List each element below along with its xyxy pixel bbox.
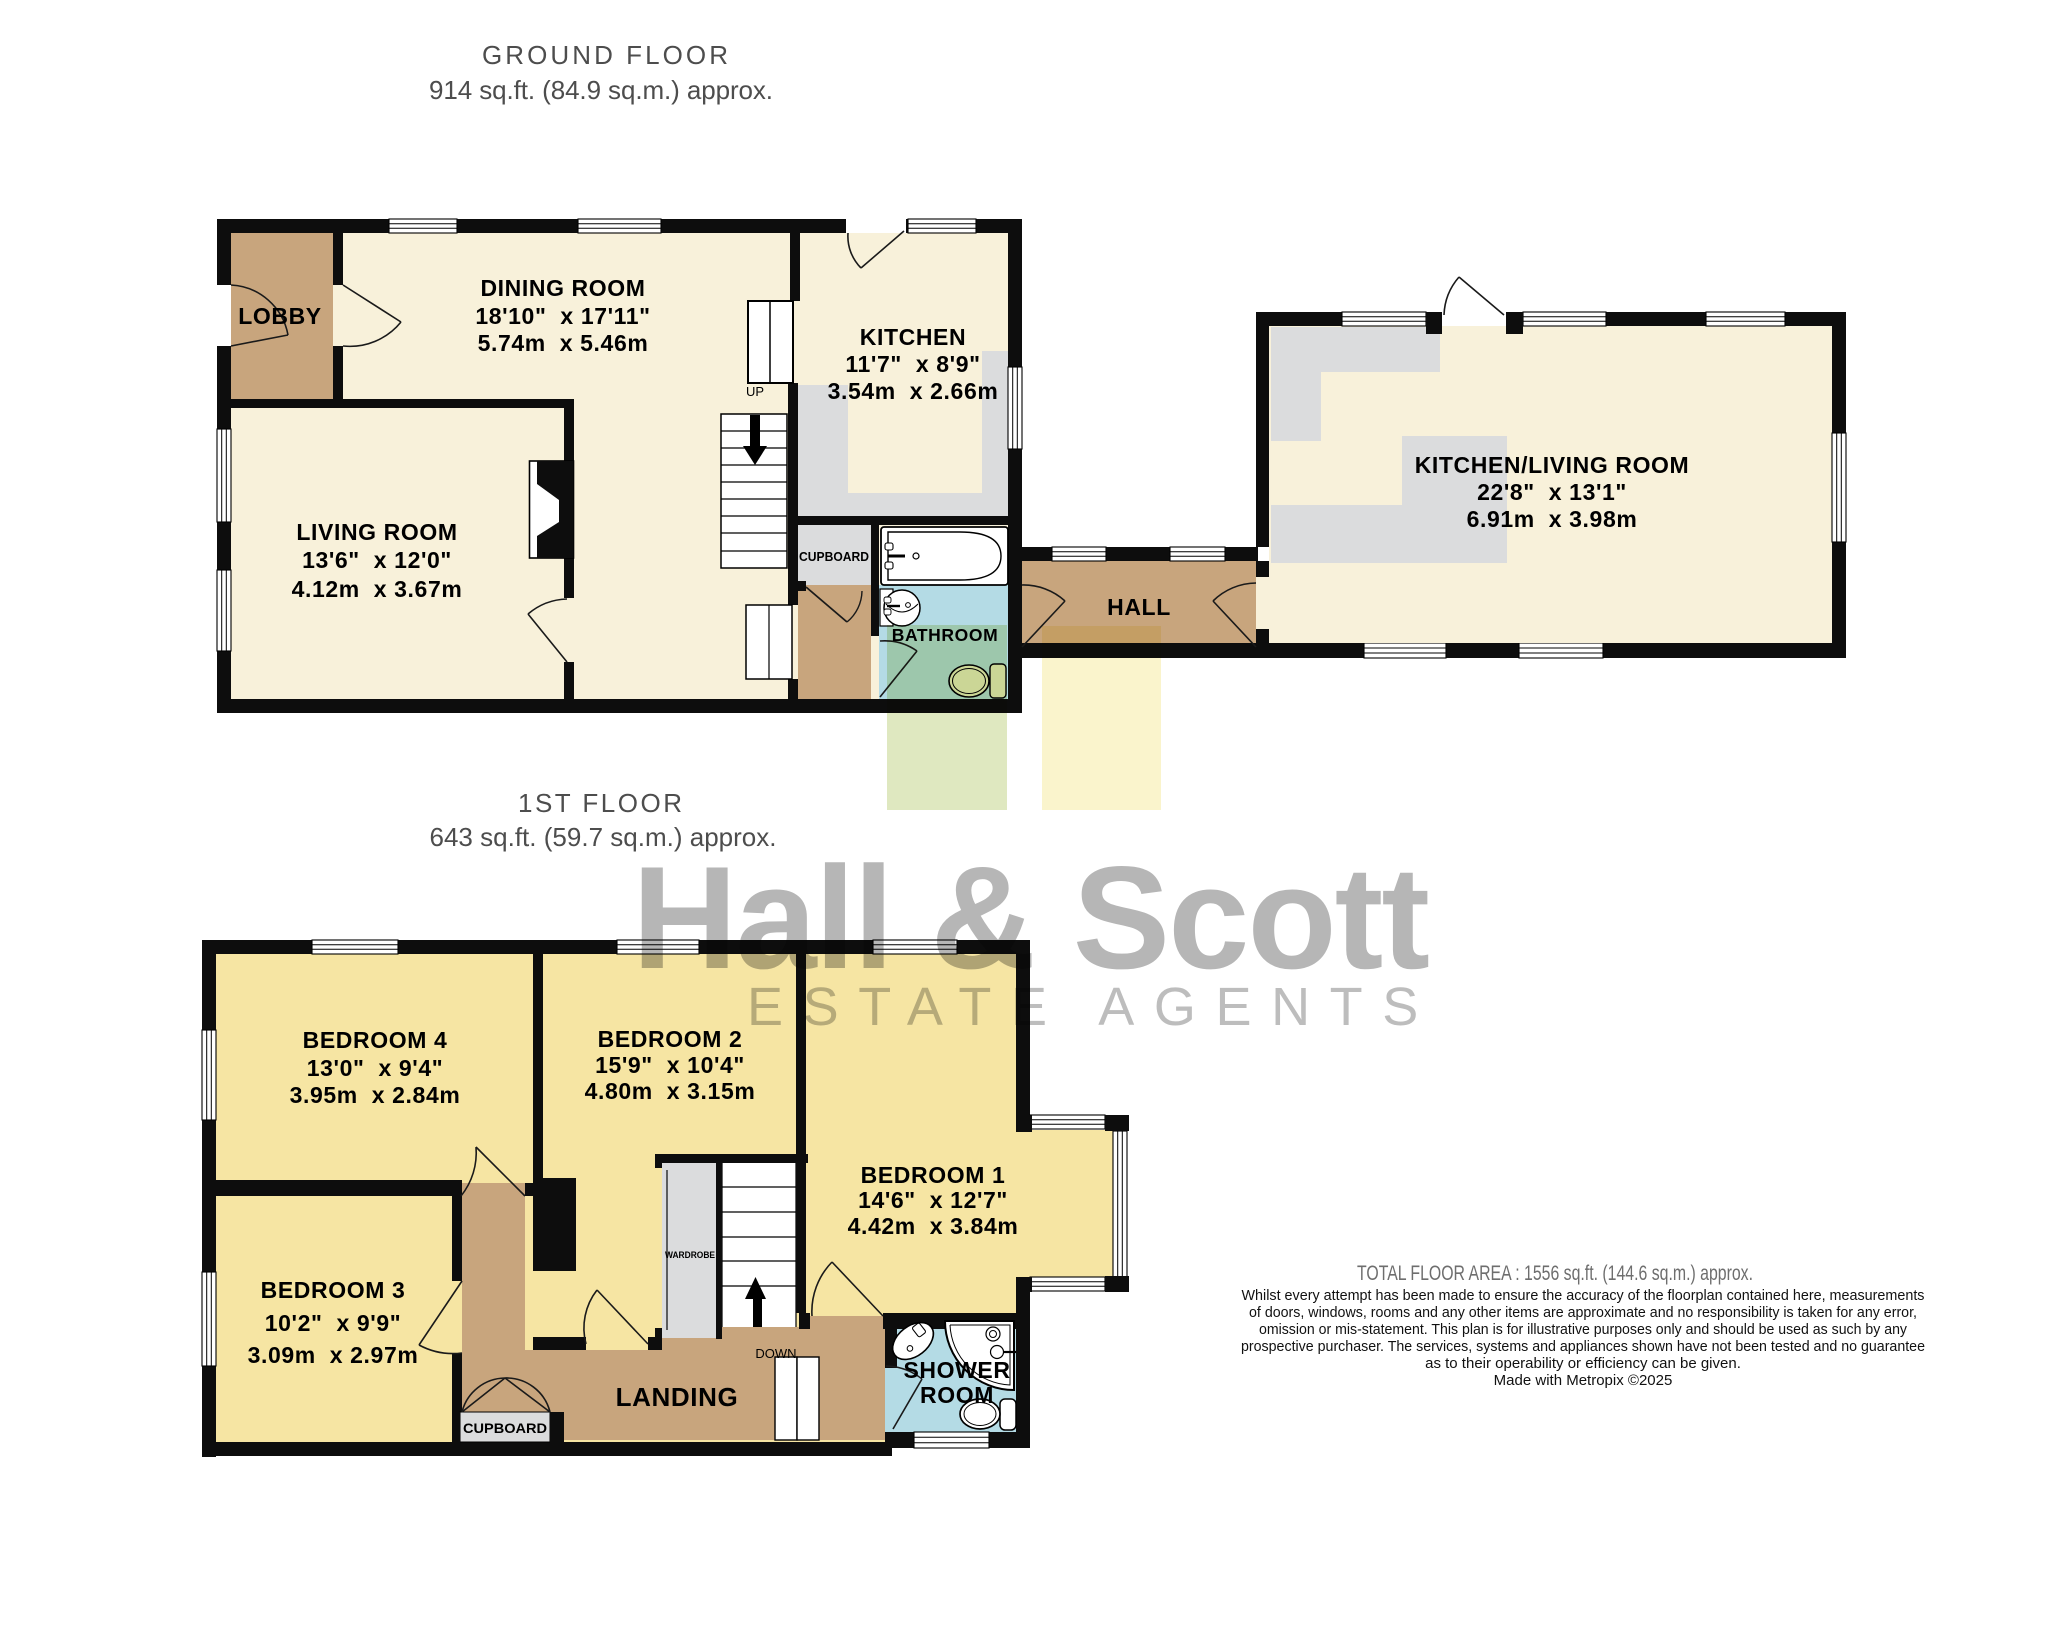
svg-text:BEDROOM 4: BEDROOM 4 bbox=[303, 1027, 448, 1053]
svg-text:of doors, windows, rooms and a: of doors, windows, rooms and any other i… bbox=[1249, 1304, 1917, 1321]
svg-text:Made with Metropix ©2025: Made with Metropix ©2025 bbox=[1494, 1372, 1673, 1389]
svg-text:15'9" x 10'4": 15'9" x 10'4" bbox=[595, 1052, 745, 1078]
svg-text:CUPBOARD: CUPBOARD bbox=[799, 549, 869, 564]
svg-text:Hall & Scott: Hall & Scott bbox=[632, 836, 1430, 999]
svg-text:LIVING ROOM: LIVING ROOM bbox=[296, 519, 457, 545]
svg-text:5.74m x 5.46m: 5.74m x 5.46m bbox=[478, 330, 649, 356]
svg-text:BEDROOM 1: BEDROOM 1 bbox=[861, 1162, 1006, 1188]
svg-text:ESTATE AGENTS: ESTATE AGENTS bbox=[747, 977, 1438, 1037]
svg-text:6.91m x 3.98m: 6.91m x 3.98m bbox=[1467, 506, 1638, 532]
svg-text:3.09m x 2.97m: 3.09m x 2.97m bbox=[248, 1342, 419, 1368]
svg-text:13'0" x 9'4": 13'0" x 9'4" bbox=[307, 1055, 443, 1081]
svg-text:4.12m x 3.67m: 4.12m x 3.67m bbox=[292, 576, 463, 602]
svg-text:as to their operability or eff: as to their operability or efficiency ca… bbox=[1425, 1355, 1741, 1372]
svg-text:1ST FLOOR: 1ST FLOOR bbox=[518, 788, 682, 818]
svg-text:14'6" x 12'7": 14'6" x 12'7" bbox=[858, 1187, 1008, 1213]
svg-text:CUPBOARD: CUPBOARD bbox=[463, 1420, 547, 1436]
svg-text:643 sq.ft. (59.7 sq.m.) approx: 643 sq.ft. (59.7 sq.m.) approx. bbox=[430, 822, 777, 852]
svg-text:4.80m x 3.15m: 4.80m x 3.15m bbox=[585, 1078, 756, 1104]
svg-text:10'2" x 9'9": 10'2" x 9'9" bbox=[265, 1310, 401, 1336]
svg-text:SHOWER: SHOWER bbox=[903, 1357, 1010, 1383]
svg-text:3.54m x 2.66m: 3.54m x 2.66m bbox=[828, 378, 999, 404]
svg-text:Whilst every attempt has been: Whilst every attempt has been made to en… bbox=[1242, 1287, 1925, 1304]
svg-text:UP: UP bbox=[746, 384, 764, 399]
svg-text:KITCHEN/LIVING ROOM: KITCHEN/LIVING ROOM bbox=[1415, 452, 1690, 478]
svg-text:11'7" x 8'9": 11'7" x 8'9" bbox=[845, 351, 980, 377]
svg-text:TOTAL FLOOR AREA : 1556 sq.ft.: TOTAL FLOOR AREA : 1556 sq.ft. (144.6 sq… bbox=[1357, 1262, 1753, 1285]
svg-text:DOWN: DOWN bbox=[755, 1346, 796, 1361]
svg-text:13'6" x 12'0": 13'6" x 12'0" bbox=[302, 547, 452, 573]
svg-text:914 sq.ft. (84.9 sq.m.) approx: 914 sq.ft. (84.9 sq.m.) approx. bbox=[429, 75, 773, 105]
svg-text:GROUND FLOOR: GROUND FLOOR bbox=[482, 40, 728, 70]
svg-text:ROOM: ROOM bbox=[920, 1382, 994, 1408]
svg-text:22'8" x 13'1": 22'8" x 13'1" bbox=[1477, 479, 1627, 505]
svg-text:LANDING: LANDING bbox=[616, 1382, 739, 1412]
svg-text:HALL: HALL bbox=[1107, 594, 1171, 620]
svg-text:DINING ROOM: DINING ROOM bbox=[480, 275, 645, 301]
svg-text:KITCHEN: KITCHEN bbox=[860, 324, 966, 350]
svg-text:BEDROOM 3: BEDROOM 3 bbox=[261, 1277, 406, 1303]
svg-text:omission or mis-statement. Thi: omission or mis-statement. This plan is … bbox=[1259, 1321, 1907, 1338]
svg-text:4.42m x 3.84m: 4.42m x 3.84m bbox=[848, 1213, 1019, 1239]
svg-text:LOBBY: LOBBY bbox=[238, 303, 322, 329]
svg-text:18'10" x 17'11": 18'10" x 17'11" bbox=[475, 303, 650, 329]
svg-text:3.95m x 2.84m: 3.95m x 2.84m bbox=[290, 1082, 461, 1108]
svg-text:WARDROBE: WARDROBE bbox=[665, 1250, 715, 1260]
svg-text:prospective purchaser. The ser: prospective purchaser. The services, sys… bbox=[1241, 1338, 1925, 1355]
svg-text:BEDROOM 2: BEDROOM 2 bbox=[598, 1026, 743, 1052]
